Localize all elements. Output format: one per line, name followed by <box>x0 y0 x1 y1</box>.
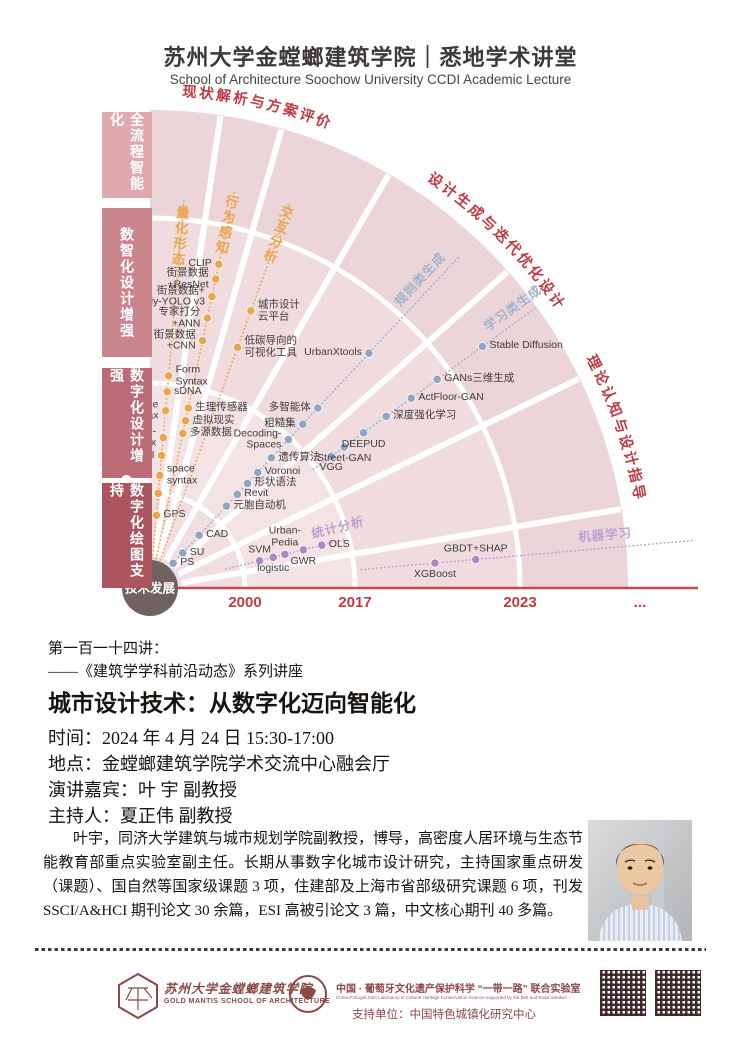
lab-seal-icon <box>288 974 328 1014</box>
tech-point-dot <box>179 549 187 557</box>
ray-name-label: 态 <box>171 250 186 267</box>
series-name: ——《建筑学学科前沿动态》系列讲座 <box>48 660 303 681</box>
tech-point-dot <box>365 349 373 357</box>
tech-point-dot <box>215 260 223 268</box>
tech-point-dot <box>478 342 486 350</box>
tech-point-dot <box>299 420 307 428</box>
school-hexagon-logo-icon <box>116 972 160 1020</box>
lab-name-english: China-Portugal Joint Laboratory of Cultu… <box>336 995 567 1000</box>
tech-point-dot <box>164 372 172 380</box>
tech-point-dot <box>179 429 187 437</box>
qr-code-2 <box>655 970 701 1016</box>
speaker-photo <box>588 820 692 941</box>
tech-point-dot <box>359 429 367 437</box>
tech-point-dot <box>157 451 165 459</box>
tech-point-dot <box>327 452 335 460</box>
timeline-year-label: 2000 <box>228 594 261 611</box>
era-bar-label: 数字化绘图支持 <box>107 483 147 588</box>
tech-point-dot <box>152 511 160 519</box>
tech-point-dot <box>156 471 164 479</box>
tech-point-dot <box>340 443 348 451</box>
era-bar-0: 全流程智能化 <box>102 112 152 198</box>
tech-point-dot <box>181 417 189 425</box>
ray-name-label: 形 <box>173 236 188 252</box>
dashed-divider <box>35 948 706 951</box>
tech-point-dot <box>431 559 439 567</box>
qr-code-1 <box>600 970 646 1016</box>
support-unit: 支持单位：中国特色城镇化研究中心 <box>352 1006 536 1022</box>
footer: 苏州大学金螳螂建筑学院 GOLD MANTIS SCHOOL OF ARCHIT… <box>0 960 741 1045</box>
era-bar-label: 数智化设计增强 <box>117 227 137 339</box>
tech-point-dot <box>472 555 480 563</box>
timeline-year-label: ... <box>634 594 647 611</box>
tech-point-dot <box>154 489 162 497</box>
tech-point-dot <box>212 275 220 283</box>
era-bar-1: 数智化设计增强 <box>102 208 152 357</box>
lab-name-chinese: 中国 · 葡萄牙文化遗产保护科学 “一带一路” 联合实验室 <box>336 980 580 995</box>
timeline-year-label: 2023 <box>503 594 536 611</box>
tech-point-dot <box>195 531 203 539</box>
era-junction-dot <box>121 357 132 368</box>
ray-name-label: 量 <box>175 205 190 221</box>
timeline-year-label: 2017 <box>338 594 371 611</box>
era-bar-label: 全流程智能化 <box>107 112 147 198</box>
tech-point-dot <box>255 556 263 564</box>
tech-point-dot <box>281 550 289 558</box>
tech-point-dot <box>159 433 167 441</box>
lecture-title: 城市设计技术：从数字化迈向智能化 <box>48 684 416 718</box>
tech-point-dot <box>318 541 326 549</box>
tech-point-dot <box>433 375 441 383</box>
ray-name-label: 化 <box>174 219 189 236</box>
era-junction-dot <box>121 198 132 209</box>
lecture-time: 时间：2024 年 4 月 24 日 15:30-17:00 <box>48 724 334 750</box>
tech-point-dot <box>407 394 415 402</box>
era-bar-3: 数字化绘图支持 <box>102 483 152 588</box>
tech-point-dot <box>222 502 230 510</box>
tech-point-dot <box>203 314 211 322</box>
lecture-location: 地点：金螳螂建筑学院学术交流中心融会厅 <box>48 750 390 776</box>
tech-point-dot <box>269 553 277 561</box>
speaker-bio: 叶宇，同济大学建筑与城市规划学院副教授，博导，高密度人居环境与生态节能教育部重点… <box>43 827 583 923</box>
tech-point-dot <box>247 307 255 315</box>
tech-point-dot <box>314 404 322 412</box>
tech-point-dot <box>254 468 262 476</box>
tech-point-dot <box>243 479 251 487</box>
tech-point-dot <box>184 404 192 412</box>
tech-point-dot <box>161 406 169 414</box>
tech-point-dot <box>284 435 292 443</box>
tech-point-dot <box>233 490 241 498</box>
tech-point-dot <box>382 412 390 420</box>
tech-point-dot <box>267 454 275 462</box>
era-bar-label: 数字化设计增强 <box>107 368 147 478</box>
tech-point-dot <box>163 388 171 396</box>
tech-point-dot <box>299 546 307 554</box>
speaker-portrait-image <box>588 820 692 941</box>
tech-point-dot <box>198 336 206 344</box>
tech-point-dot <box>233 343 241 351</box>
lecture-speaker: 演讲嘉宾：叶 宇 副教授 <box>48 776 237 802</box>
lecture-host: 主持人：夏正伟 副教授 <box>48 802 233 828</box>
tech-point-dot <box>208 292 216 300</box>
era-bar-2: 数字化设计增强 <box>102 368 152 478</box>
series-number: 第一百一十四讲： <box>48 637 168 658</box>
tech-point-dot <box>169 559 177 567</box>
lecture-poster: 苏州大学金螳螂建筑学院｜悉地学术讲堂 School of Architectur… <box>0 0 741 1050</box>
